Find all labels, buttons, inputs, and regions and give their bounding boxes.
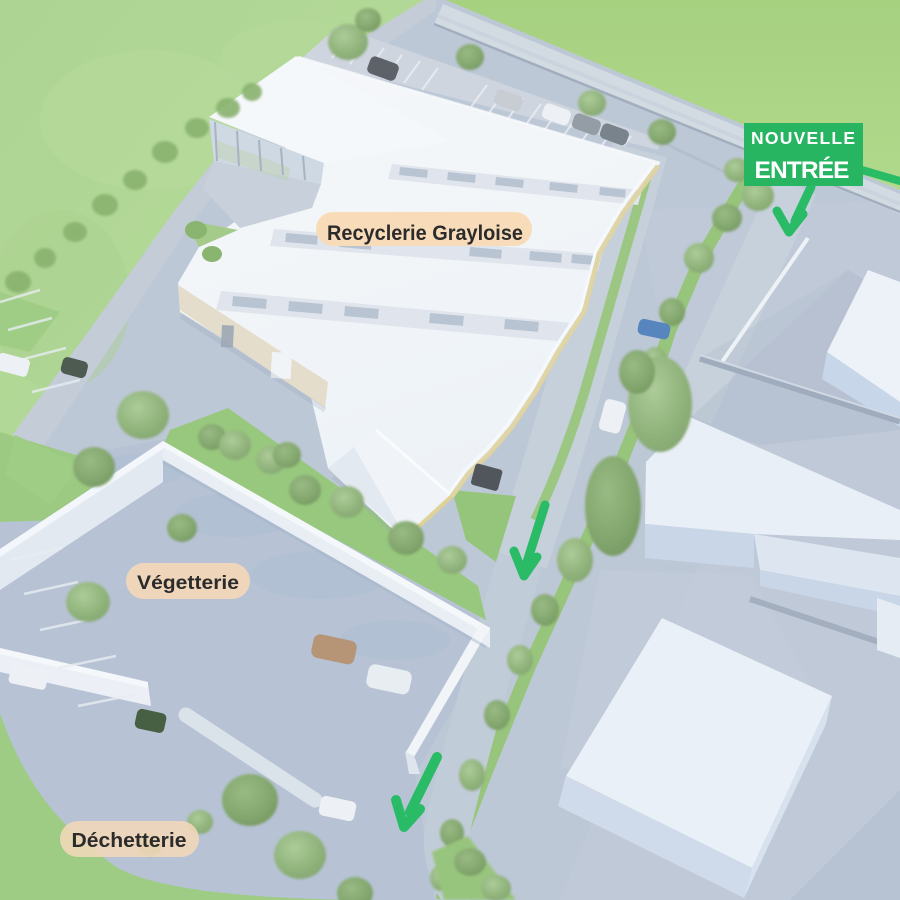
svg-text:Recyclerie Grayloise: Recyclerie Grayloise [327,221,523,245]
svg-text:Déchetterie: Déchetterie [72,830,187,852]
svg-text:Végetterie: Végetterie [137,572,239,594]
svg-text:NOUVELLE: NOUVELLE [751,128,855,148]
svg-text:ENTRÉE: ENTRÉE [755,156,850,184]
